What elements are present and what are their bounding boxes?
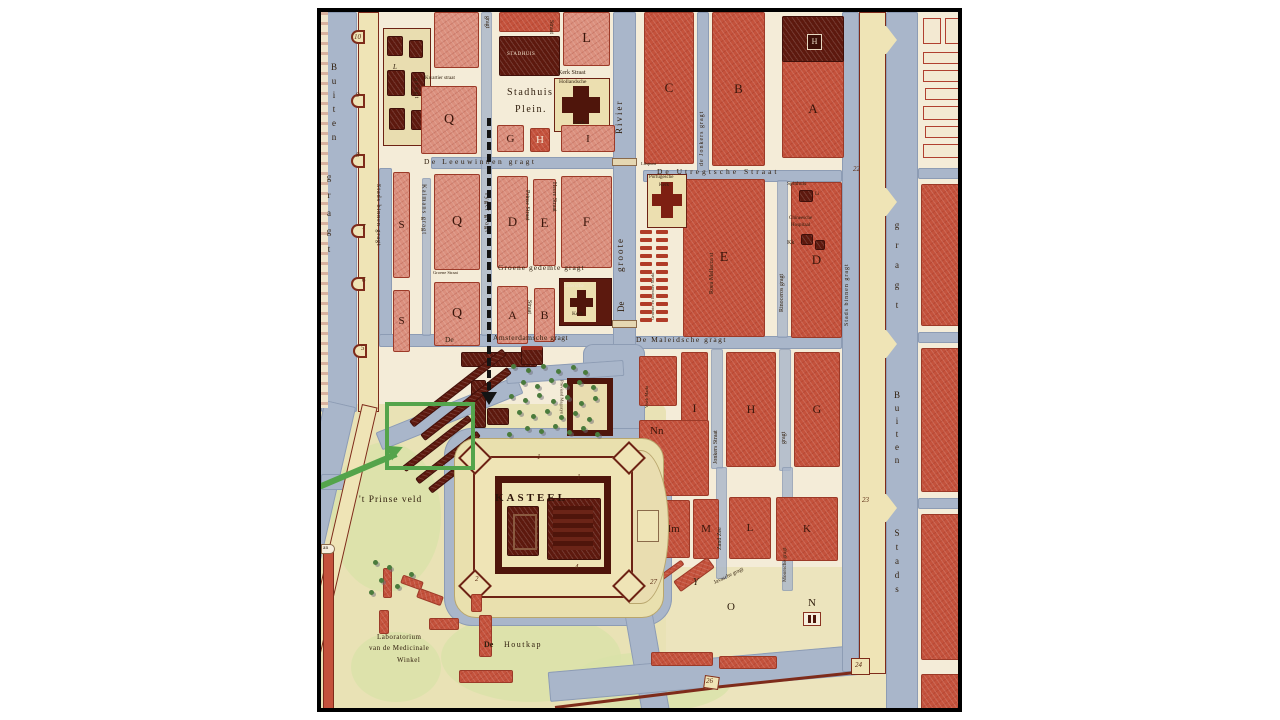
right-shore-block	[921, 674, 962, 712]
houtkap-building	[471, 594, 482, 612]
tree-icon	[387, 565, 392, 570]
label-chineesche: Chineesche	[789, 216, 812, 221]
tree-icon	[509, 394, 514, 399]
label-proviand: Proviand Magazyn	[559, 380, 564, 436]
kasteel-number: 4	[575, 564, 579, 571]
n-building-icon	[803, 612, 821, 626]
market-stall	[656, 230, 668, 234]
label-maleidsche: De Maleidsche gragt	[636, 336, 727, 344]
label-gragt-hg: gragt	[781, 396, 787, 444]
proviand-magazijn	[567, 378, 613, 436]
tree-icon	[565, 395, 570, 400]
label-rivier-de: De	[617, 288, 626, 312]
block-letter: Q	[452, 306, 462, 322]
city-block-S: S	[393, 172, 410, 278]
label-lilspunt: Lilspunt	[641, 162, 656, 167]
kasteel-building-lines	[553, 506, 593, 550]
kasteel-number: 1	[537, 454, 541, 461]
tree-icon	[379, 578, 384, 583]
canal-stub-1	[918, 168, 962, 179]
market-stall	[640, 254, 652, 258]
houtkap-building	[459, 670, 513, 683]
bridge	[612, 320, 637, 328]
market-stall	[640, 294, 652, 298]
building	[409, 40, 423, 58]
tree-icon	[551, 399, 556, 404]
n-building-bars	[813, 615, 816, 623]
city-block-H: H	[530, 128, 550, 152]
tree-icon	[511, 364, 516, 369]
tree-icon	[581, 426, 586, 431]
tree-icon	[593, 396, 598, 401]
label-gragt-compound: gragt	[413, 78, 419, 136]
tree-icon	[537, 393, 542, 398]
label-rivier: Rivier	[615, 70, 624, 134]
market-stall	[656, 294, 668, 298]
canal-stads-binnen-east	[842, 12, 859, 672]
market-stall	[656, 270, 668, 274]
block-letter: F	[583, 214, 590, 230]
tree-icon	[541, 364, 546, 369]
city-block-D-big: D	[791, 182, 842, 338]
building	[815, 240, 825, 250]
market-stall	[640, 270, 652, 274]
tree-icon	[567, 430, 572, 435]
bastion-number: 26	[706, 678, 713, 685]
block-letter: A	[808, 101, 817, 117]
block-letter: G	[507, 133, 515, 145]
tree-icon	[591, 385, 596, 390]
building	[389, 108, 405, 130]
market-stall	[640, 262, 652, 266]
label-groote: groote	[616, 210, 625, 272]
lab-building	[379, 610, 389, 634]
building-row-south	[719, 656, 777, 669]
city-block-Q-top: Q	[421, 86, 477, 154]
warehouse	[487, 408, 509, 425]
tree-icon	[573, 411, 578, 416]
label-stadhuis: STADHUIS	[507, 52, 535, 57]
city-block-L-top: L	[563, 12, 610, 66]
tree-icon	[526, 368, 531, 373]
bastion-number: 27	[650, 579, 657, 586]
label-kerk-3: Kerk	[659, 183, 669, 188]
label-hospitaal: Hospitaal	[791, 223, 810, 228]
tree-icon	[373, 560, 378, 565]
market-stall	[656, 318, 668, 322]
tree-icon	[539, 429, 544, 434]
block-letter: E	[541, 215, 549, 231]
hospitaal-building	[801, 234, 813, 245]
label-spinhuis: Spinhuis	[787, 182, 806, 188]
label-kaimans: Kaimans gragt	[420, 184, 427, 329]
label-prinse-veld: 't Prinse veld	[359, 496, 422, 506]
tree-icon	[595, 432, 600, 437]
block-letter: A	[508, 308, 517, 323]
market-stall	[640, 318, 652, 322]
tree-icon	[563, 383, 568, 388]
market-stall	[640, 246, 652, 250]
tree-icon	[409, 572, 414, 577]
label-visch-markt: Visch Markt	[645, 372, 650, 408]
market-stall	[640, 238, 652, 242]
highlight-rectangle	[385, 402, 475, 470]
label-roea: Roea Mallacca st	[709, 184, 715, 294]
tree-icon	[571, 365, 576, 370]
canal-stub-2	[918, 332, 962, 343]
block-letter: Q	[452, 214, 462, 230]
label-kk: Kk	[787, 240, 794, 246]
canal-stub-3	[918, 498, 962, 509]
city-block-B: B	[712, 12, 765, 166]
houtkap-building	[479, 615, 492, 657]
canal-stads-buiten-east	[886, 12, 918, 712]
label-stads-binnen-west: Stads binnen gragt	[375, 184, 381, 320]
label-de: De	[445, 336, 454, 344]
bastion-number: 23	[862, 497, 869, 504]
city-block	[434, 12, 479, 68]
block-letter: H	[536, 134, 544, 146]
tree-icon	[517, 410, 522, 415]
wall-southwest	[323, 552, 334, 712]
tree-icon	[549, 378, 554, 383]
block-letter: E	[720, 250, 729, 266]
label-buiten-east: Buiten	[892, 390, 901, 480]
block-letter: C	[665, 80, 674, 96]
tree-icon	[369, 590, 374, 595]
bastion-number: 8	[356, 152, 360, 159]
label-straat-top: Straat	[548, 20, 554, 66]
garden-plot	[925, 126, 959, 138]
block-letter: S	[398, 219, 404, 231]
market-stall	[640, 230, 652, 234]
city-block-G: G	[497, 125, 524, 152]
market-stall	[656, 246, 668, 250]
label-gragt-west: gragt	[324, 172, 333, 312]
label-kerk-1: Kerk	[573, 120, 585, 126]
label-stadhuis-plein-2: Plein.	[515, 105, 547, 115]
tree-icon	[531, 414, 536, 419]
market-stall	[656, 238, 668, 242]
market-stall	[656, 278, 668, 282]
block-letter: Q	[444, 112, 454, 128]
block-letter: I	[693, 401, 697, 416]
label-leeuwinnen: De Leeuwinnen gragt	[424, 158, 536, 166]
block-letter: L	[582, 31, 591, 47]
market-stall	[656, 310, 668, 314]
tree-icon	[559, 415, 564, 420]
tree-icon	[577, 380, 582, 385]
tree-icon	[395, 584, 400, 589]
garden-plot	[923, 106, 961, 120]
tree-icon	[553, 424, 558, 429]
label-prinse-straat: Prinse Straat	[524, 190, 530, 260]
label-kwartier: Kwartier straat	[425, 76, 455, 81]
garden-plot	[923, 70, 961, 82]
right-shore-block	[921, 514, 962, 660]
label-portugesche: Portugesche	[649, 175, 673, 180]
church-cross-icon	[562, 97, 600, 113]
city-block-H2: H	[726, 352, 776, 467]
block-letter: G	[813, 402, 822, 417]
garden-plot	[923, 52, 961, 64]
market-stall	[656, 262, 668, 266]
label-jonkers-gragt: de Jonkers gragt	[699, 38, 705, 166]
market-stall	[656, 302, 668, 306]
label-stadhuis-plein-1: Stadhuis	[507, 88, 553, 98]
bastion-number: 9	[356, 92, 360, 99]
tree-icon	[507, 432, 512, 437]
church-cross-icon	[652, 194, 682, 206]
label-kerk-straat: Kerk Straat	[558, 70, 586, 76]
label-rinoceros: Rinoceros gragt	[779, 184, 785, 312]
label-jonkers-straat: Jonkers Straat	[713, 372, 719, 464]
city-block-E-big: E	[683, 179, 765, 337]
garden-plot	[923, 144, 961, 158]
block-letter-Y: Y	[693, 578, 699, 588]
label-utregtsche: De Utregtsche Straat	[657, 168, 779, 176]
bastion-number: 10	[354, 34, 361, 41]
city-block-C: C	[644, 12, 694, 164]
label-groene-gedemte: Groene gedemte gragt	[498, 264, 585, 272]
market-stall	[640, 302, 652, 306]
slide-canvas: Q L G H I S S Q Q D E F A B C B A H E D …	[0, 0, 1280, 720]
bastion-number: 7	[362, 224, 366, 231]
lab-building	[383, 568, 392, 598]
lab-building	[429, 618, 459, 630]
label-buiten-west: Buiten	[329, 62, 338, 167]
market-stall	[656, 254, 668, 258]
tree-icon	[535, 384, 540, 389]
market-stall	[640, 286, 652, 290]
kasteel-number: 2	[475, 576, 479, 583]
building	[387, 70, 405, 96]
block-letter: Nn	[650, 425, 663, 437]
bastion-number: 5	[361, 345, 365, 352]
market-stall	[640, 310, 652, 314]
city-block-S2: S	[393, 290, 410, 352]
label-moorsche: Moorsche gragt	[783, 508, 789, 582]
kasteel-number: 1	[577, 474, 581, 481]
city-block-I: I	[561, 125, 615, 152]
market-stall	[656, 286, 668, 290]
label-an: an	[323, 546, 328, 552]
label-lutersche: Lutersche	[564, 284, 584, 289]
label-l-small: L	[393, 64, 397, 71]
tree-icon	[521, 380, 526, 385]
n-building-bars	[808, 615, 811, 623]
label-lab-3: Winkel	[397, 657, 420, 664]
dashed-route-arrow	[487, 118, 491, 390]
block-letter: K	[803, 523, 811, 535]
label-houtkap-de: De	[484, 641, 493, 649]
label-groene-straat: Groene Straat	[433, 271, 458, 276]
tree-icon	[545, 409, 550, 414]
label-zand-zee: Zand Zee	[717, 488, 723, 550]
block-letter: D	[508, 214, 517, 230]
label-stads-east: Stads	[892, 528, 901, 623]
block-letter: L	[747, 522, 754, 534]
building-row-south	[651, 652, 713, 666]
h-building-icon: H	[807, 34, 822, 50]
label-lab-1: Laboratorium	[377, 634, 422, 641]
bastion-number: 24	[855, 662, 862, 669]
block-letter-N: N	[808, 598, 816, 609]
tree-icon	[587, 417, 592, 422]
label-lab-2: van de Medicinale	[369, 645, 429, 652]
block-letter: H	[747, 402, 756, 417]
block-letter: B	[540, 308, 548, 323]
city-block-L2: L	[729, 497, 771, 559]
garden-plot	[923, 18, 941, 44]
label-li: Li	[815, 192, 819, 197]
right-shore-block	[921, 348, 962, 492]
garden-plot	[945, 18, 961, 44]
bastion-number: 6	[362, 277, 366, 284]
tree-icon	[525, 426, 530, 431]
label-heere: Heere Straat	[551, 182, 557, 264]
label-gragt-east: gragt	[892, 220, 901, 380]
label-kerk-2: Kerk	[572, 312, 583, 318]
label-hollandsche: Hollandsche	[559, 80, 587, 86]
kasteel-building-court	[513, 514, 537, 550]
block-letter: M	[701, 523, 711, 535]
city-block-G2: G	[794, 352, 840, 467]
chapel-building	[521, 346, 543, 365]
tree-icon	[579, 401, 584, 406]
block-letter: I	[586, 133, 590, 145]
bridge	[612, 158, 637, 166]
esplanade-building	[637, 510, 659, 542]
block-letter: B	[734, 81, 743, 97]
city-block-M: M	[693, 499, 719, 559]
tree-icon	[556, 369, 561, 374]
church-cross-icon	[570, 298, 593, 307]
label-gragt-top: gragt	[484, 16, 490, 56]
bastion-number: 22	[853, 166, 860, 173]
garden-plot	[925, 88, 959, 100]
block-letter: D	[812, 252, 821, 268]
building	[387, 36, 403, 56]
dashed-arrow-head	[481, 392, 497, 405]
label-stads-binnen-east: Stads binnen gragt	[844, 174, 850, 326]
tree-icon	[523, 398, 528, 403]
spinhuis-building	[799, 190, 813, 202]
right-shore-block	[921, 184, 962, 326]
grass-patch	[351, 632, 441, 702]
city-block-F: F	[561, 176, 612, 268]
market-stall	[640, 278, 652, 282]
block-letter-O: O	[727, 602, 735, 613]
label-amsterdamsche: Amsterdamsche gragt	[493, 334, 568, 342]
label-groente-markt: Groente en hoender Markt	[651, 232, 656, 320]
tree-icon	[583, 370, 588, 375]
label-houtkap: Houtkap	[504, 641, 542, 649]
city-block-Q-low: Q	[434, 282, 480, 346]
map-panel: Q L G H I S S Q Q D E F A B C B A H E D …	[317, 8, 962, 712]
block-letter: S	[398, 315, 404, 327]
city-block-Q-mid: Q	[434, 174, 480, 270]
label-kasteel: KASTEEL	[495, 493, 568, 504]
